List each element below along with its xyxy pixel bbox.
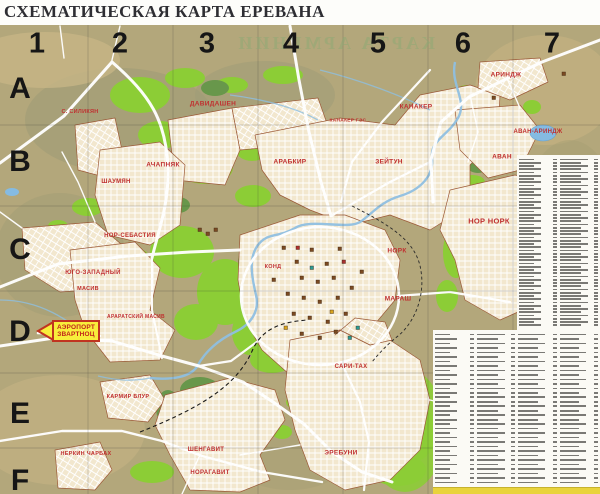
street-index-panel-lower	[433, 330, 600, 487]
index-entry	[435, 450, 474, 453]
index-entry	[435, 468, 474, 471]
index-bottom-highlight-strip	[433, 487, 600, 494]
grid-row-label-B: B	[9, 147, 31, 177]
index-entry	[518, 427, 557, 430]
index-entry	[477, 387, 516, 390]
index-entry	[518, 418, 557, 421]
index-entry	[518, 481, 557, 484]
index-entry	[518, 360, 557, 363]
index-entry	[435, 342, 474, 345]
index-entry	[560, 364, 599, 367]
district-label: САРИ-ТАХ	[335, 364, 368, 370]
index-entry	[435, 346, 474, 349]
index-entry	[477, 414, 516, 417]
index-entry	[518, 355, 557, 358]
grid-column-label-2: 2	[112, 30, 128, 59]
index-entry	[518, 423, 557, 426]
street-index-lower-column	[518, 333, 557, 484]
index-entry	[518, 472, 557, 475]
index-entry	[477, 364, 516, 367]
index-entry	[477, 378, 516, 381]
index-entry	[477, 351, 516, 354]
index-entry	[477, 445, 516, 448]
district-label: КОНД	[265, 264, 282, 270]
index-entry	[477, 382, 516, 385]
index-entry	[560, 432, 599, 435]
index-entry	[560, 337, 599, 340]
index-entry	[560, 373, 599, 376]
index-entry	[477, 396, 516, 399]
district-label: КАНАКЕР ГЭС	[330, 119, 367, 124]
grid-row-label-D: D	[9, 317, 31, 347]
index-entry	[560, 423, 599, 426]
index-entry	[435, 369, 474, 372]
index-entry	[518, 400, 557, 403]
grid-row-label-F: F	[11, 466, 29, 494]
index-entry	[477, 418, 516, 421]
district-label: АЧАПНЯК	[146, 162, 179, 169]
grid-column-label-4: 4	[283, 30, 299, 59]
index-entry	[477, 400, 516, 403]
district-label: ШЕНГАВИТ	[188, 447, 224, 453]
street-index-upper-column	[560, 158, 598, 327]
index-entry	[435, 396, 474, 399]
index-entry	[435, 391, 474, 394]
index-entry	[435, 418, 474, 421]
index-entry	[435, 463, 474, 466]
index-entry	[518, 342, 557, 345]
airport-zvartnots-sign: АЭРОПОРТ ЗВАРТНОЦ	[36, 317, 106, 347]
index-entry	[477, 409, 516, 412]
index-entry	[560, 333, 599, 336]
index-entry	[518, 463, 557, 466]
district-label: ШАУМЯН	[101, 179, 130, 185]
district-label: АВАН-АРИНДЖ	[513, 129, 562, 135]
index-entry	[435, 445, 474, 448]
district-label: АРАРАТСКИЙ МАСИВ	[107, 314, 165, 320]
district-label: АРИНДЖ	[491, 72, 522, 79]
index-entry	[477, 454, 516, 457]
index-entry	[560, 391, 599, 394]
index-entry	[518, 445, 557, 448]
district-label: С. СИЛИКЯН	[61, 109, 98, 115]
index-entry	[435, 472, 474, 475]
index-entry	[435, 405, 474, 408]
index-entry	[518, 409, 557, 412]
title-bar: СХЕМАТИЧЕСКАЯ КАРТА ЕРЕВАНА	[0, 0, 600, 25]
index-entry	[518, 391, 557, 394]
index-entry	[560, 387, 599, 390]
street-index-lower-column	[435, 333, 474, 484]
index-entry	[518, 346, 557, 349]
index-entry	[560, 441, 599, 444]
index-entry	[518, 373, 557, 376]
index-entry	[560, 418, 599, 421]
index-entry	[560, 351, 599, 354]
index-entry	[518, 450, 557, 453]
index-entry	[518, 351, 557, 354]
index-entry	[477, 436, 516, 439]
index-entry	[477, 337, 516, 340]
street-index-lower-column	[477, 333, 516, 484]
index-entry	[560, 472, 599, 475]
street-index-upper-column	[519, 158, 557, 327]
district-label: НЕРКИН ЧАРБАХ	[61, 451, 112, 457]
district-label: КАРМИР БЛУР	[107, 394, 150, 400]
index-entry	[560, 450, 599, 453]
index-entry	[560, 360, 599, 363]
index-entry	[518, 436, 557, 439]
index-entry	[435, 409, 474, 412]
index-entry	[560, 477, 599, 480]
index-entry	[560, 346, 599, 349]
index-entry	[560, 463, 599, 466]
index-entry	[518, 405, 557, 408]
index-entry	[477, 463, 516, 466]
index-entry	[477, 468, 516, 471]
index-entry	[560, 342, 599, 345]
index-entry	[560, 382, 599, 385]
index-entry	[435, 333, 474, 336]
index-entry	[435, 351, 474, 354]
index-entry	[560, 436, 599, 439]
index-entry	[518, 387, 557, 390]
index-entry	[477, 333, 516, 336]
index-entry	[477, 450, 516, 453]
index-entry	[435, 414, 474, 417]
index-entry	[435, 355, 474, 358]
index-entry	[518, 364, 557, 367]
index-entry	[560, 324, 598, 327]
grid-row-label-E: E	[10, 399, 30, 429]
index-entry	[477, 369, 516, 372]
index-entry	[435, 373, 474, 376]
index-entry	[560, 427, 599, 430]
index-entry	[560, 405, 599, 408]
index-entry	[560, 355, 599, 358]
index-entry	[518, 441, 557, 444]
index-entry	[435, 360, 474, 363]
index-entry	[435, 378, 474, 381]
index-entry	[518, 414, 557, 417]
district-label: МАСИВ	[77, 286, 99, 292]
grid-row-label-A: A	[9, 74, 31, 104]
index-entry	[518, 396, 557, 399]
index-entry	[560, 459, 599, 462]
district-label: НОРАГАВИТ	[190, 470, 229, 476]
index-entry	[518, 378, 557, 381]
street-index-panel-upper	[517, 155, 600, 330]
index-entry	[435, 432, 474, 435]
grid-column-label-5: 5	[370, 30, 386, 59]
grid-column-label-6: 6	[455, 30, 471, 59]
map-page: КАРТА АРМЕНИИ СХЕМАТИЧЕСКАЯ КАРТА ЕРЕВАН…	[0, 0, 600, 494]
index-entry	[477, 346, 516, 349]
district-label: МАРАШ	[385, 296, 412, 303]
index-entry	[435, 441, 474, 444]
index-entry	[435, 436, 474, 439]
page-title: СХЕМАТИЧЕСКАЯ КАРТА ЕРЕВАНА	[4, 2, 325, 22]
index-entry	[435, 477, 474, 480]
index-entry	[477, 481, 516, 484]
index-entry	[477, 405, 516, 408]
index-entry	[560, 454, 599, 457]
index-entry	[477, 472, 516, 475]
index-entry	[518, 454, 557, 457]
index-entry	[435, 423, 474, 426]
district-label: КАНАКЕР	[400, 104, 433, 111]
index-entry	[560, 481, 599, 484]
grid-column-label-3: 3	[199, 30, 215, 59]
airport-sign-line2: ЗВАРТНОЦ	[57, 331, 94, 338]
index-entry	[435, 454, 474, 457]
index-entry	[477, 360, 516, 363]
index-entry	[560, 445, 599, 448]
index-entry	[518, 432, 557, 435]
district-label: НОР-СЕБАСТИЯ	[104, 233, 156, 239]
index-entry	[435, 364, 474, 367]
index-entry	[560, 400, 599, 403]
index-entry	[560, 378, 599, 381]
district-label: НОР НОРК	[468, 217, 510, 226]
street-index-lower-column	[560, 333, 599, 484]
index-entry	[518, 337, 557, 340]
index-entry	[435, 427, 474, 430]
index-entry	[560, 414, 599, 417]
grid-column-label-1: 1	[29, 30, 45, 59]
index-entry	[518, 477, 557, 480]
grid-row-label-C: C	[9, 235, 31, 265]
district-label: ЗЕЙТУН	[375, 159, 403, 166]
district-label: ДАВИДАШЕН	[190, 101, 236, 108]
index-entry	[560, 409, 599, 412]
index-entry	[435, 337, 474, 340]
index-entry	[560, 396, 599, 399]
index-entry	[435, 459, 474, 462]
index-entry	[477, 459, 516, 462]
index-entry	[518, 468, 557, 471]
index-entry	[518, 459, 557, 462]
airport-sign-line1: АЭРОПОРТ	[57, 324, 95, 331]
index-entry	[435, 387, 474, 390]
index-entry	[435, 382, 474, 385]
index-entry	[518, 333, 557, 336]
index-entry	[477, 391, 516, 394]
index-entry	[519, 324, 557, 327]
index-entry	[477, 355, 516, 358]
index-entry	[477, 373, 516, 376]
index-entry	[518, 369, 557, 372]
grid-column-label-7: 7	[544, 30, 560, 59]
index-entry	[560, 468, 599, 471]
index-entry	[435, 481, 474, 484]
index-entry	[477, 432, 516, 435]
index-entry	[560, 369, 599, 372]
index-entry	[477, 441, 516, 444]
index-entry	[477, 423, 516, 426]
district-label: АВАН	[492, 154, 512, 161]
district-label: АРАБКИР	[274, 159, 307, 166]
bleed-through-text: КАРТА АРМЕНИИ	[225, 33, 435, 54]
index-entry	[477, 342, 516, 345]
index-entry	[477, 427, 516, 430]
index-entry	[435, 400, 474, 403]
index-entry	[518, 382, 557, 385]
district-label: ЭРЕБУНИ	[324, 450, 357, 457]
index-entry	[477, 477, 516, 480]
district-label: НОРК	[387, 248, 406, 255]
district-label: ЮГО-ЗАПАДНЫЙ	[65, 270, 120, 276]
